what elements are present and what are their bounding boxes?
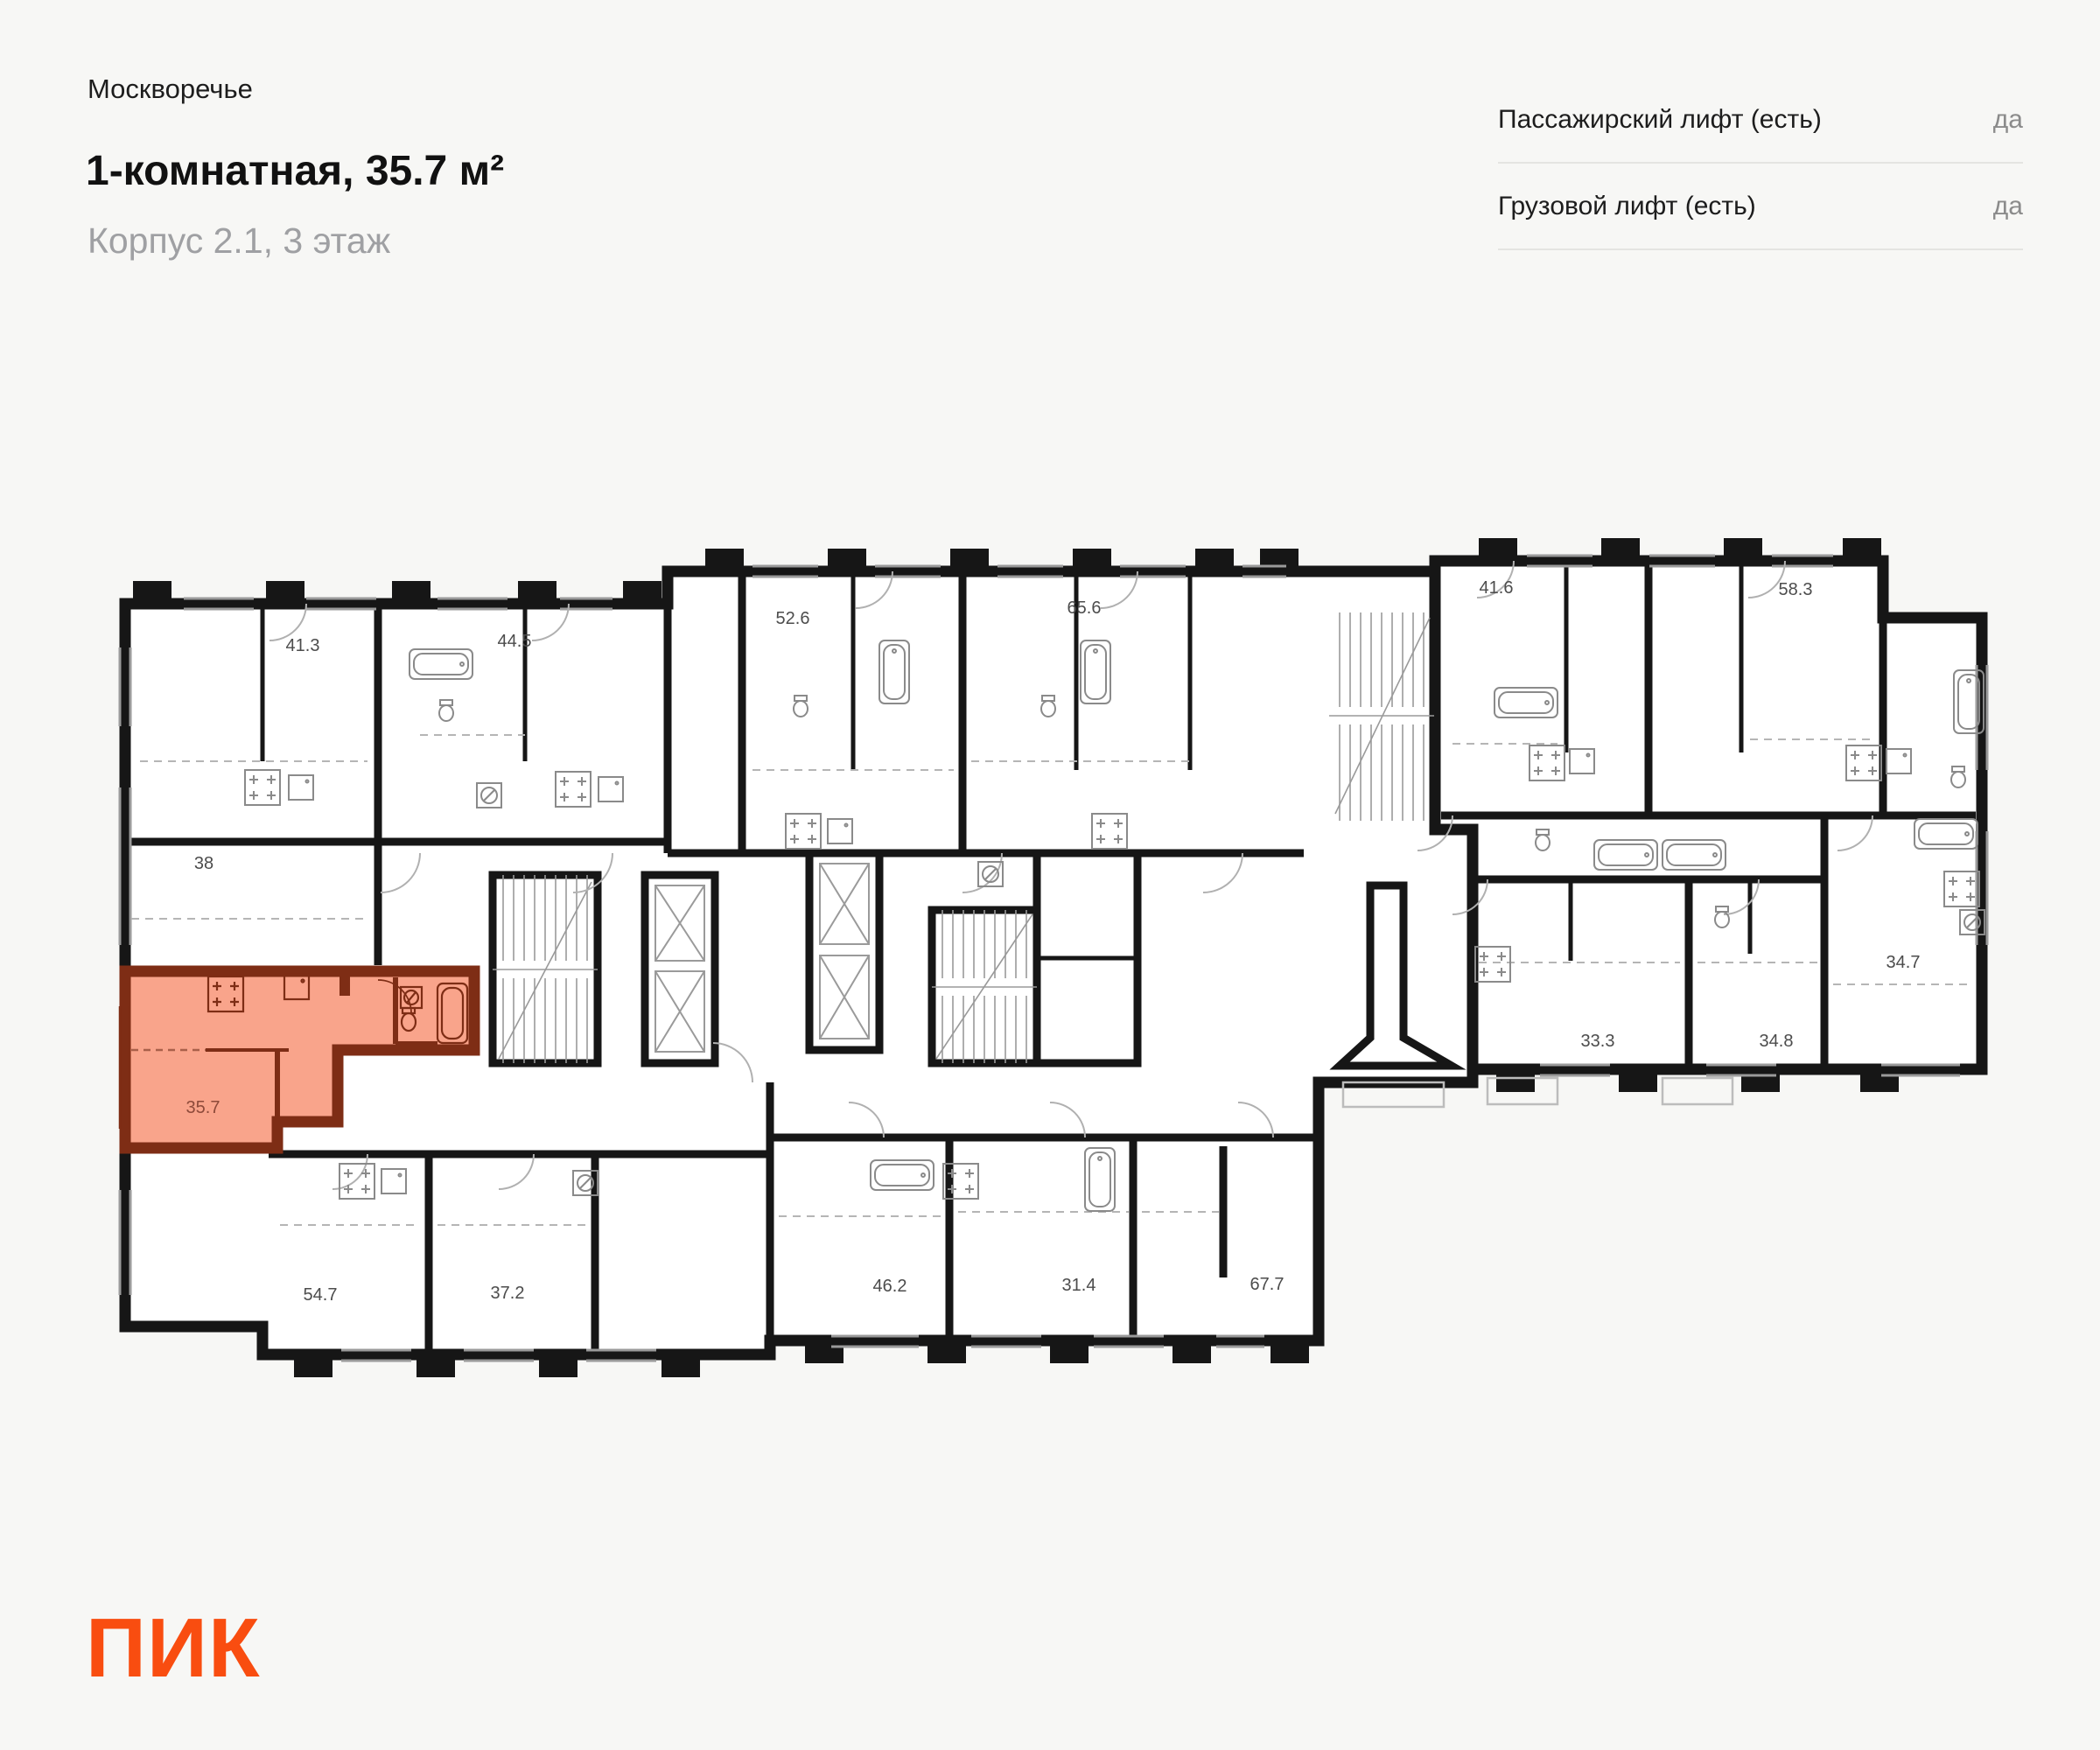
area-label-44.5: 44.5 bbox=[498, 632, 532, 651]
area-label-67.7: 67.7 bbox=[1250, 1275, 1284, 1294]
area-label-54.7: 54.7 bbox=[304, 1285, 338, 1305]
area-label-34.8: 34.8 bbox=[1760, 1032, 1794, 1051]
area-label-33.3: 33.3 bbox=[1581, 1032, 1615, 1051]
area-label-41.6: 41.6 bbox=[1480, 578, 1514, 598]
pik-logo[interactable]: ПИК bbox=[86, 1606, 261, 1690]
highlighted-apartment-wall-stub bbox=[339, 971, 350, 996]
area-label-46.2: 46.2 bbox=[873, 1277, 907, 1296]
area-label-37.2: 37.2 bbox=[491, 1284, 525, 1303]
balconies bbox=[1343, 1078, 1732, 1107]
area-label-52.6: 52.6 bbox=[776, 609, 810, 628]
building-left-center-outline bbox=[125, 571, 1473, 1354]
area-label-65.6: 65.6 bbox=[1067, 598, 1102, 618]
area-label-58.3: 58.3 bbox=[1779, 580, 1813, 599]
floor-plan-page: Москворечье 1-комнатная, 35.7 м² Корпус … bbox=[0, 0, 2100, 1750]
area-label-31.4: 31.4 bbox=[1062, 1276, 1096, 1295]
area-label-41.3: 41.3 bbox=[286, 636, 320, 655]
floor-plan-drawing: 41.344.552.665.641.658.33854.737.246.231… bbox=[0, 0, 2100, 1750]
area-label-38: 38 bbox=[194, 854, 213, 873]
area-label-34.7: 34.7 bbox=[1886, 953, 1921, 972]
area-label-highlighted-35.7: 35.7 bbox=[186, 1098, 220, 1117]
